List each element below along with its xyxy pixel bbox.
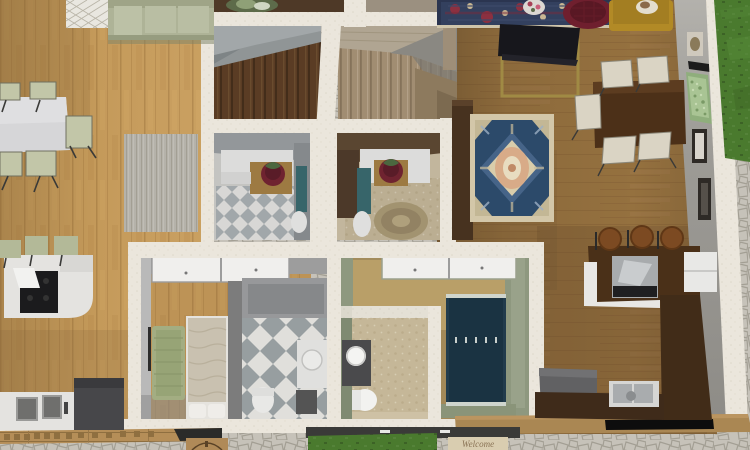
svg-text:Welcome: Welcome bbox=[462, 439, 494, 449]
